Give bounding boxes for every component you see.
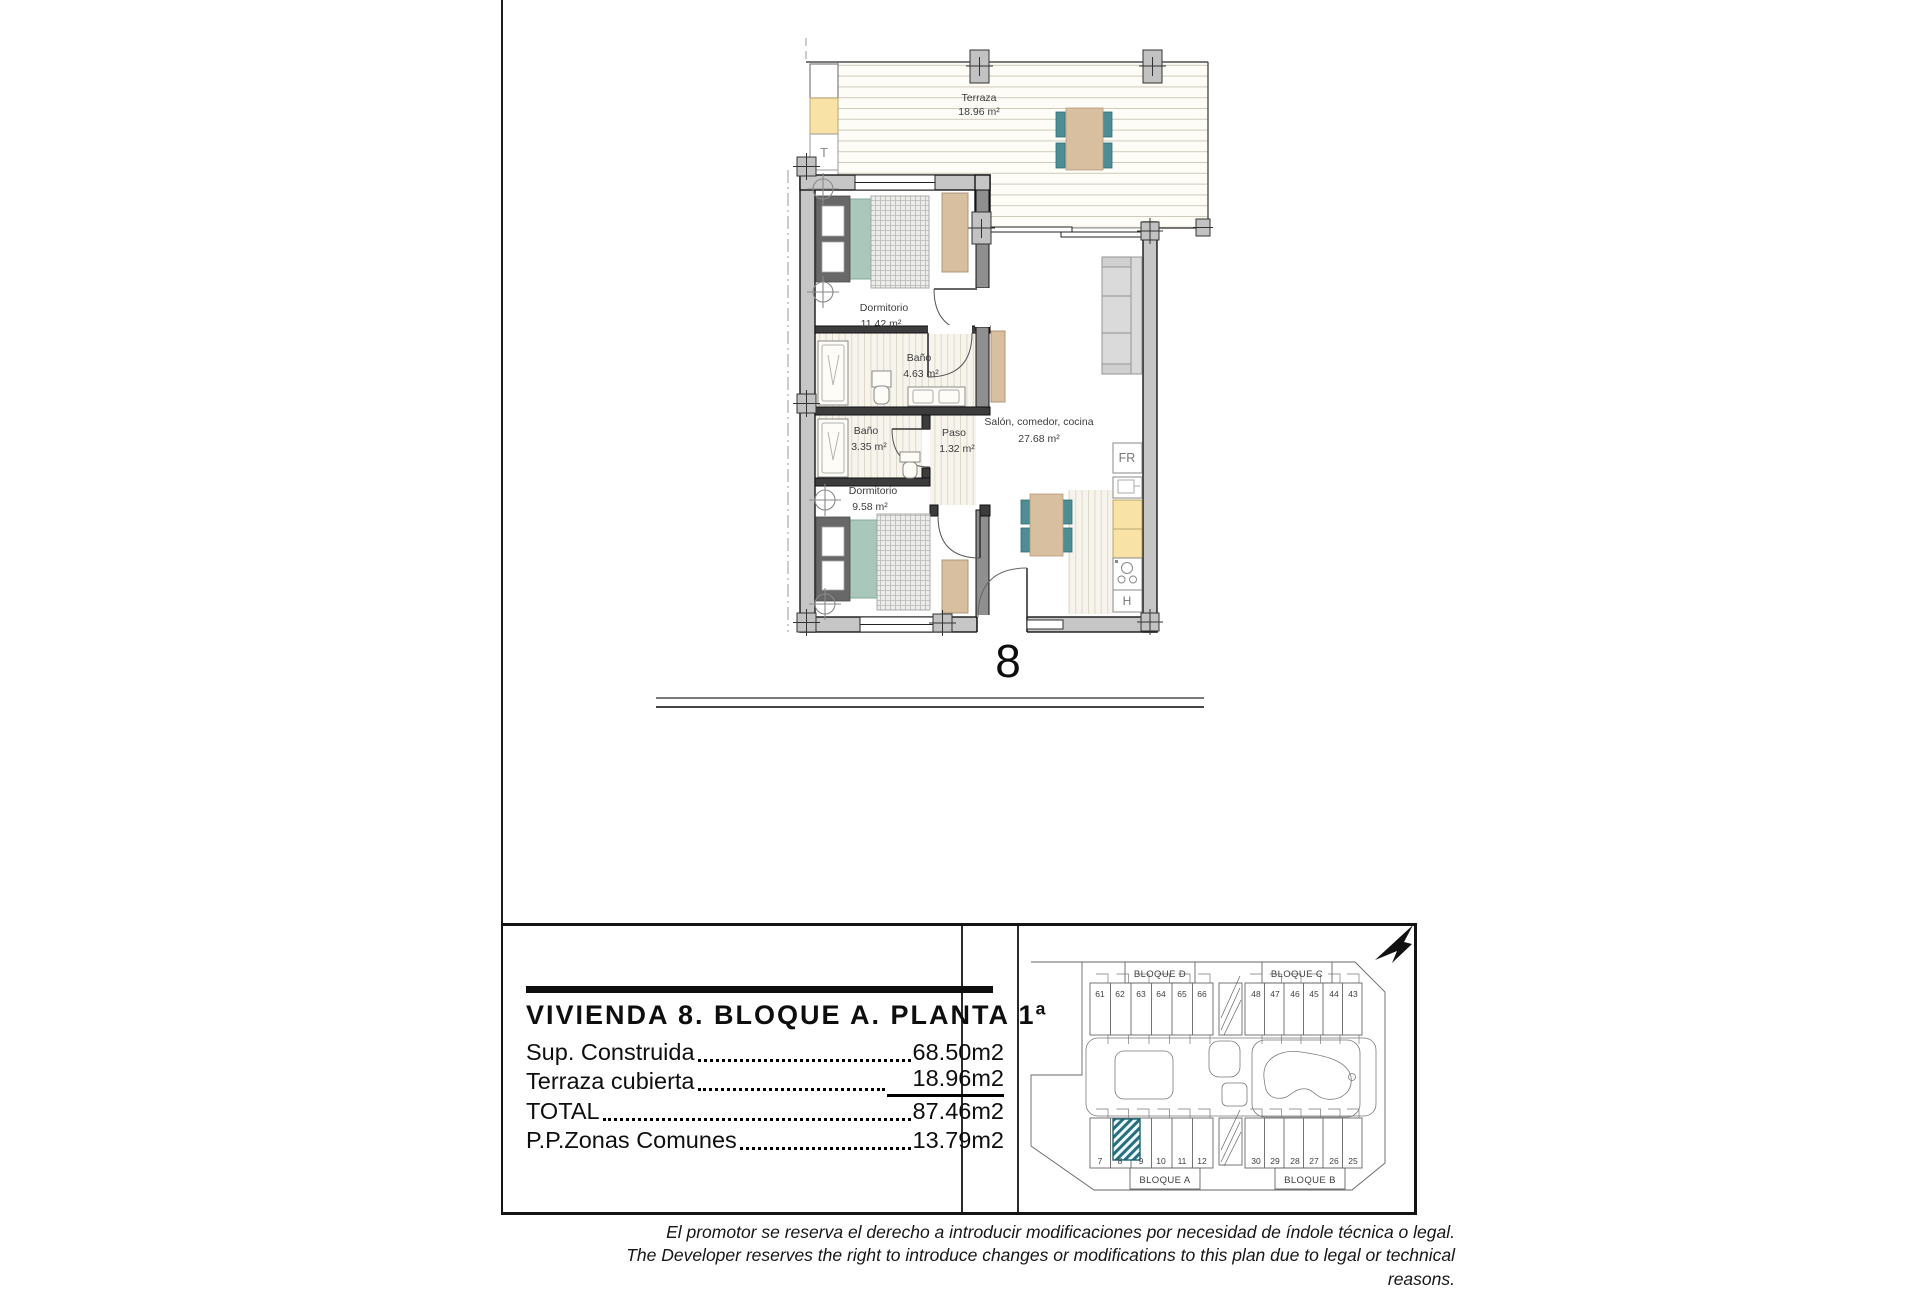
post-icon: [966, 50, 993, 83]
disclaimer-en: The Developer reserves the right to intr…: [595, 1244, 1455, 1291]
post-icon: [1139, 50, 1166, 83]
dot-leader: [698, 1059, 911, 1062]
unit-no: 44: [1329, 989, 1339, 999]
dot-leader: [698, 1088, 885, 1091]
unit-no: 27: [1309, 1156, 1319, 1166]
terrace-slider: [990, 227, 1072, 232]
rug-2: [877, 514, 930, 610]
dot-leader: [740, 1147, 911, 1150]
disclaimer: El promotor se reserva el derecho a intr…: [595, 1221, 1455, 1291]
wardrobe-1: [942, 193, 968, 272]
unit-no: 28: [1290, 1156, 1300, 1166]
unit-no: 43: [1348, 989, 1358, 999]
room-label-salon: Salón, comedor, cocina: [984, 416, 1093, 428]
dot-leader: [603, 1118, 911, 1121]
counter: [1113, 529, 1142, 558]
room-area-salon: 27.68 m²: [1018, 433, 1060, 445]
north-arrow-icon: [1375, 925, 1413, 963]
post-icon: [1137, 609, 1163, 635]
unit-no: 46: [1290, 989, 1300, 999]
unit-no: 12: [1197, 1156, 1207, 1166]
room-area-dormitorio2: 9.58 m²: [852, 501, 888, 513]
block-b-label: BLOQUE B: [1284, 1175, 1336, 1186]
sofa: [1102, 257, 1142, 374]
post-icon: [1137, 218, 1163, 244]
kitchen-floor: [1068, 490, 1113, 614]
room-area-paso: 1.32 m²: [939, 443, 975, 455]
unit-no: 26: [1329, 1156, 1339, 1166]
amenities: [1086, 1038, 1376, 1117]
pool-deck: [1252, 1040, 1360, 1117]
area-table: Sup. Construida 68.50m2 Terraza cubierta…: [526, 1036, 1004, 1154]
wardrobe-2: [942, 560, 968, 613]
room-area-dormitorio1: 11.42 m²: [861, 318, 902, 330]
block-d-label: BLOQUE D: [1134, 969, 1186, 980]
unit-no: 8: [1118, 1156, 1123, 1166]
area-label: Terraza cubierta: [526, 1068, 695, 1095]
area-row: Sup. Construida 68.50m2: [526, 1036, 1004, 1066]
room-label-bano1: Baño: [907, 352, 932, 364]
unit-no: 25: [1348, 1156, 1358, 1166]
room-label-terraza: Terraza: [961, 92, 996, 104]
area-label: TOTAL: [526, 1098, 600, 1125]
info-panel: VIVIENDA 8. BLOQUE A. PLANTA 1ª Sup. Con…: [526, 986, 1004, 1154]
unit-no: 48: [1251, 989, 1261, 999]
court: [1115, 1051, 1173, 1099]
area-row: TOTAL 87.46m2: [526, 1095, 1004, 1125]
area-row: P.P.Zonas Comunes 13.79m2: [526, 1125, 1004, 1155]
area-value: 18.96m2: [887, 1065, 1004, 1097]
dining-set: [1021, 494, 1072, 556]
unit-no: 29: [1270, 1156, 1280, 1166]
unit-no: 63: [1136, 989, 1146, 999]
post-icon: [1193, 219, 1213, 236]
disclaimer-es: El promotor se reserva el derecho a intr…: [595, 1221, 1455, 1244]
unit-no: 65: [1177, 989, 1187, 999]
room-area-terraza: 18.96 m²: [958, 106, 1000, 118]
post-icon: [968, 212, 995, 244]
site-plan: BLOQUE D BLOQUE C BLOQUE A BLOQUE B 61 6…: [1019, 924, 1415, 1214]
title-rule: [526, 986, 993, 993]
rug-1: [871, 196, 929, 288]
area-label: P.P.Zonas Comunes: [526, 1127, 737, 1154]
unit-no: 66: [1197, 989, 1207, 999]
area-value: 13.79m2: [913, 1127, 1004, 1154]
unit-no: 62: [1115, 989, 1125, 999]
block-c-label: BLOQUE C: [1271, 969, 1323, 980]
storage-label: T: [820, 145, 828, 160]
post-icon: [793, 390, 820, 417]
unit-no: 47: [1270, 989, 1280, 999]
floor-plan: T: [600, 30, 1260, 730]
unit-no: 9: [1139, 1156, 1144, 1166]
room-label-bano2: Baño: [854, 425, 879, 437]
room-label-paso: Paso: [942, 427, 966, 439]
unit-no: 11: [1178, 1156, 1187, 1166]
area-label: Sup. Construida: [526, 1039, 695, 1066]
scale-rule: [656, 698, 1204, 707]
unit-no: 7: [1098, 1156, 1103, 1166]
fridge-label: FR: [1119, 451, 1136, 465]
oven-label: H: [1123, 594, 1132, 608]
stairs: [1219, 976, 1242, 1166]
highlighted-unit-8: [1113, 1119, 1140, 1160]
pool: [1264, 1051, 1351, 1099]
unit-number: 8: [995, 635, 1021, 687]
terrace-storage: T: [810, 64, 838, 170]
post-icon: [793, 609, 820, 636]
kitchen: [1113, 443, 1142, 612]
room-label-dormitorio2: Dormitorio: [849, 485, 898, 497]
area-row: Terraza cubierta 18.96m2: [526, 1066, 1004, 1096]
room-area-bano2: 3.35 m²: [851, 441, 887, 453]
block-a-label: BLOQUE A: [1139, 1175, 1191, 1186]
post-icon: [929, 610, 956, 636]
area-value: 87.46m2: [913, 1098, 1004, 1125]
unit-no: 64: [1156, 989, 1166, 999]
unit-no: 10: [1156, 1156, 1166, 1166]
unit-no: 61: [1095, 989, 1105, 999]
hall-cabinet: [991, 331, 1005, 402]
info-title: VIVIENDA 8. BLOQUE A. PLANTA 1ª: [526, 1000, 1004, 1031]
unit-no: 30: [1251, 1156, 1261, 1166]
unit-no: 45: [1309, 989, 1319, 999]
post-icon: [793, 153, 820, 180]
area-value: 68.50m2: [913, 1039, 1004, 1066]
room-area-bano1: 4.63 m²: [903, 368, 939, 380]
entry: [977, 568, 1063, 634]
plan-page: { "floor_plan": { "unit_number": "8", "r…: [0, 0, 1920, 1280]
room-label-dormitorio1: Dormitorio: [860, 302, 909, 314]
counter: [1113, 500, 1142, 529]
